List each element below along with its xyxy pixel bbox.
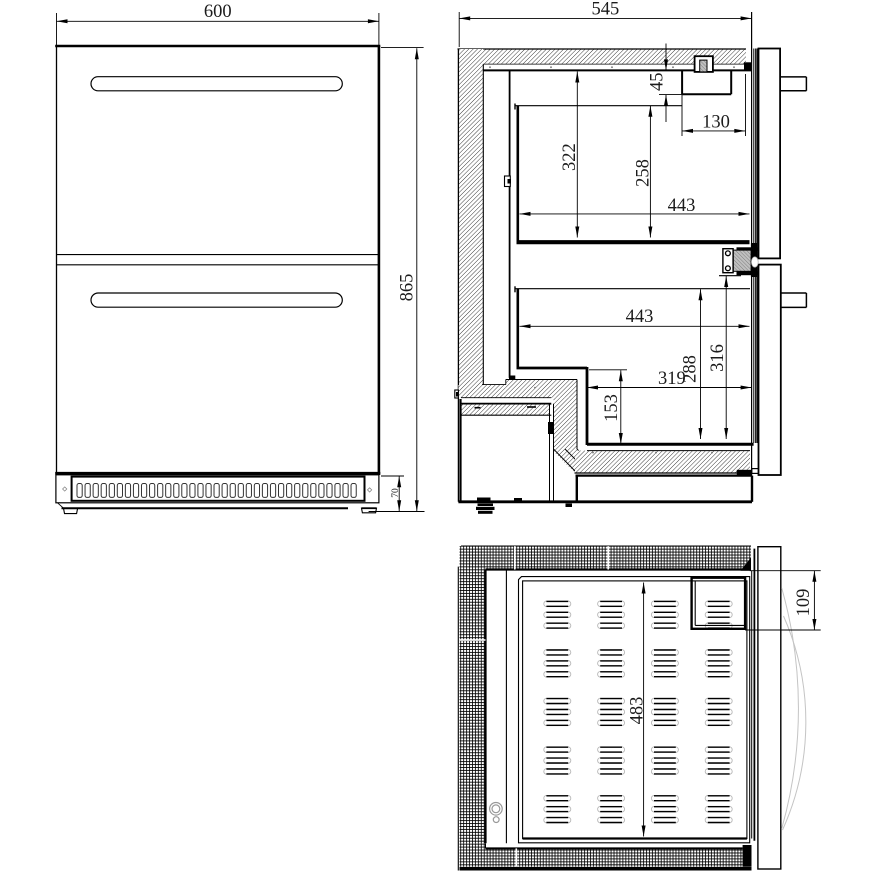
svg-text:316: 316 [708,344,728,372]
svg-text:258: 258 [634,159,654,187]
svg-text:153: 153 [602,394,622,422]
svg-text:443: 443 [668,196,696,216]
svg-text:545: 545 [592,0,620,20]
svg-text:322: 322 [560,143,580,171]
svg-text:443: 443 [626,307,654,327]
svg-text:319: 319 [658,369,686,389]
svg-text:45: 45 [648,73,668,92]
svg-text:483: 483 [627,697,647,725]
svg-text:600: 600 [204,2,232,22]
svg-text:109: 109 [794,589,814,617]
svg-text:70: 70 [391,488,401,498]
svg-text:130: 130 [702,112,730,132]
svg-text:865: 865 [398,274,418,302]
